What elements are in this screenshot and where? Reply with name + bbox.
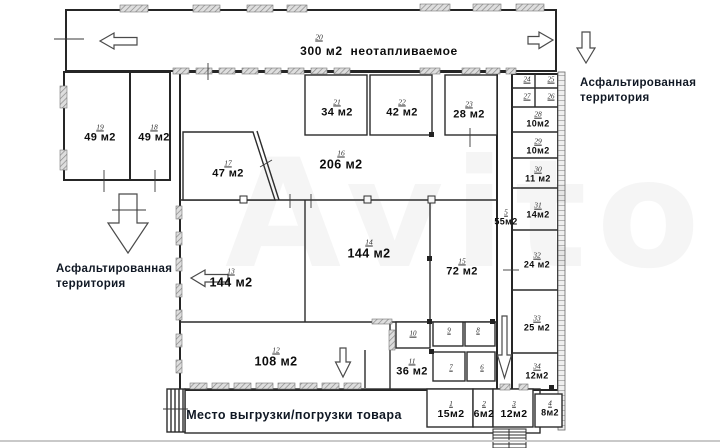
photo-bottom-border [0, 440, 720, 442]
arrow-down-room12-icon [336, 348, 351, 377]
avito-watermark: Avito [225, 128, 710, 302]
arrow-down-left-outside-icon [108, 194, 148, 253]
arrow-down-corridor-icon [498, 316, 512, 378]
loading-dock [167, 389, 562, 433]
arrow-left-room13-icon [191, 270, 228, 287]
arrow-right-top-icon [528, 32, 553, 49]
stairs [493, 429, 526, 448]
floor-plan-page: Avito 20 300 м2 неотапливаемое Место выг… [0, 0, 720, 448]
arrow-left-top-icon [100, 33, 137, 49]
arrow-down-right-outside-icon [577, 32, 595, 63]
